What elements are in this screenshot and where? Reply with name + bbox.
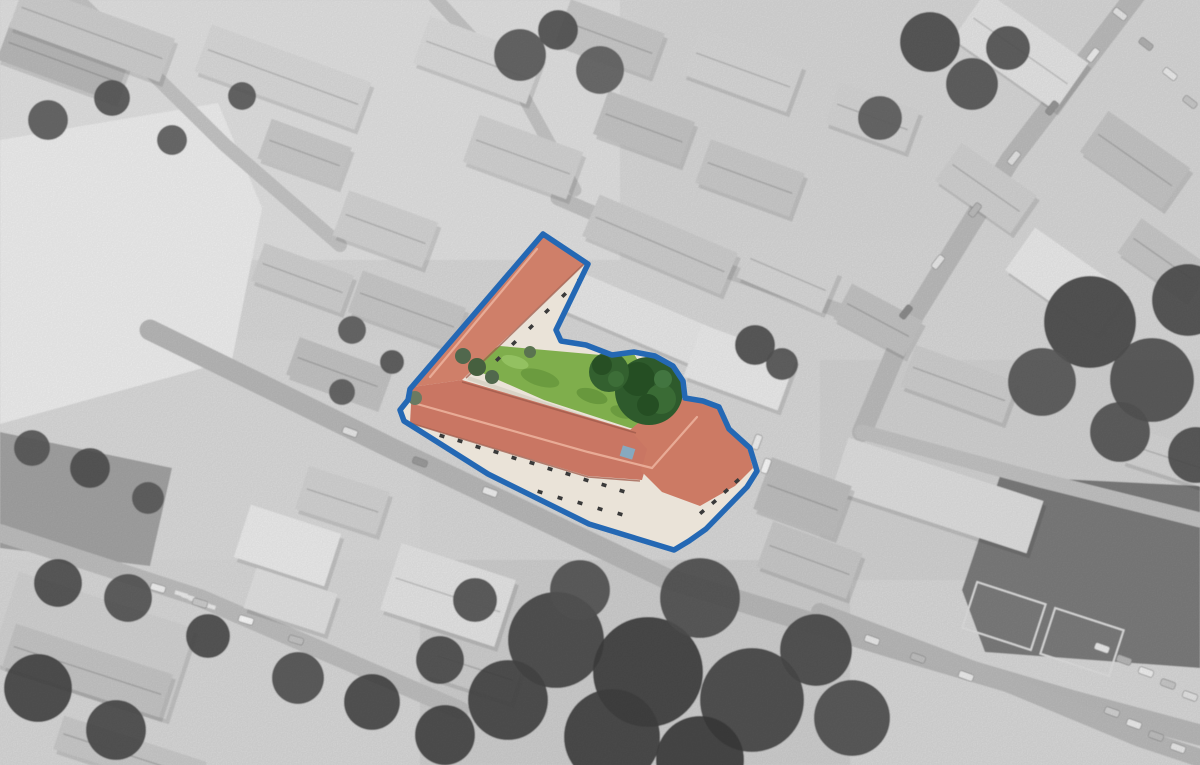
aerial-scene-svg — [0, 0, 1200, 765]
courtyard-tree — [608, 371, 624, 387]
courtyard-bush — [468, 358, 486, 376]
courtyard-tree — [654, 370, 672, 388]
courtyard-bush — [455, 348, 471, 364]
courtyard-tree — [637, 394, 659, 416]
courtyard-tree — [592, 355, 612, 375]
aerial-photo-view — [0, 0, 1200, 765]
courtyard-bush — [524, 346, 536, 358]
courtyard-bush — [485, 370, 499, 384]
